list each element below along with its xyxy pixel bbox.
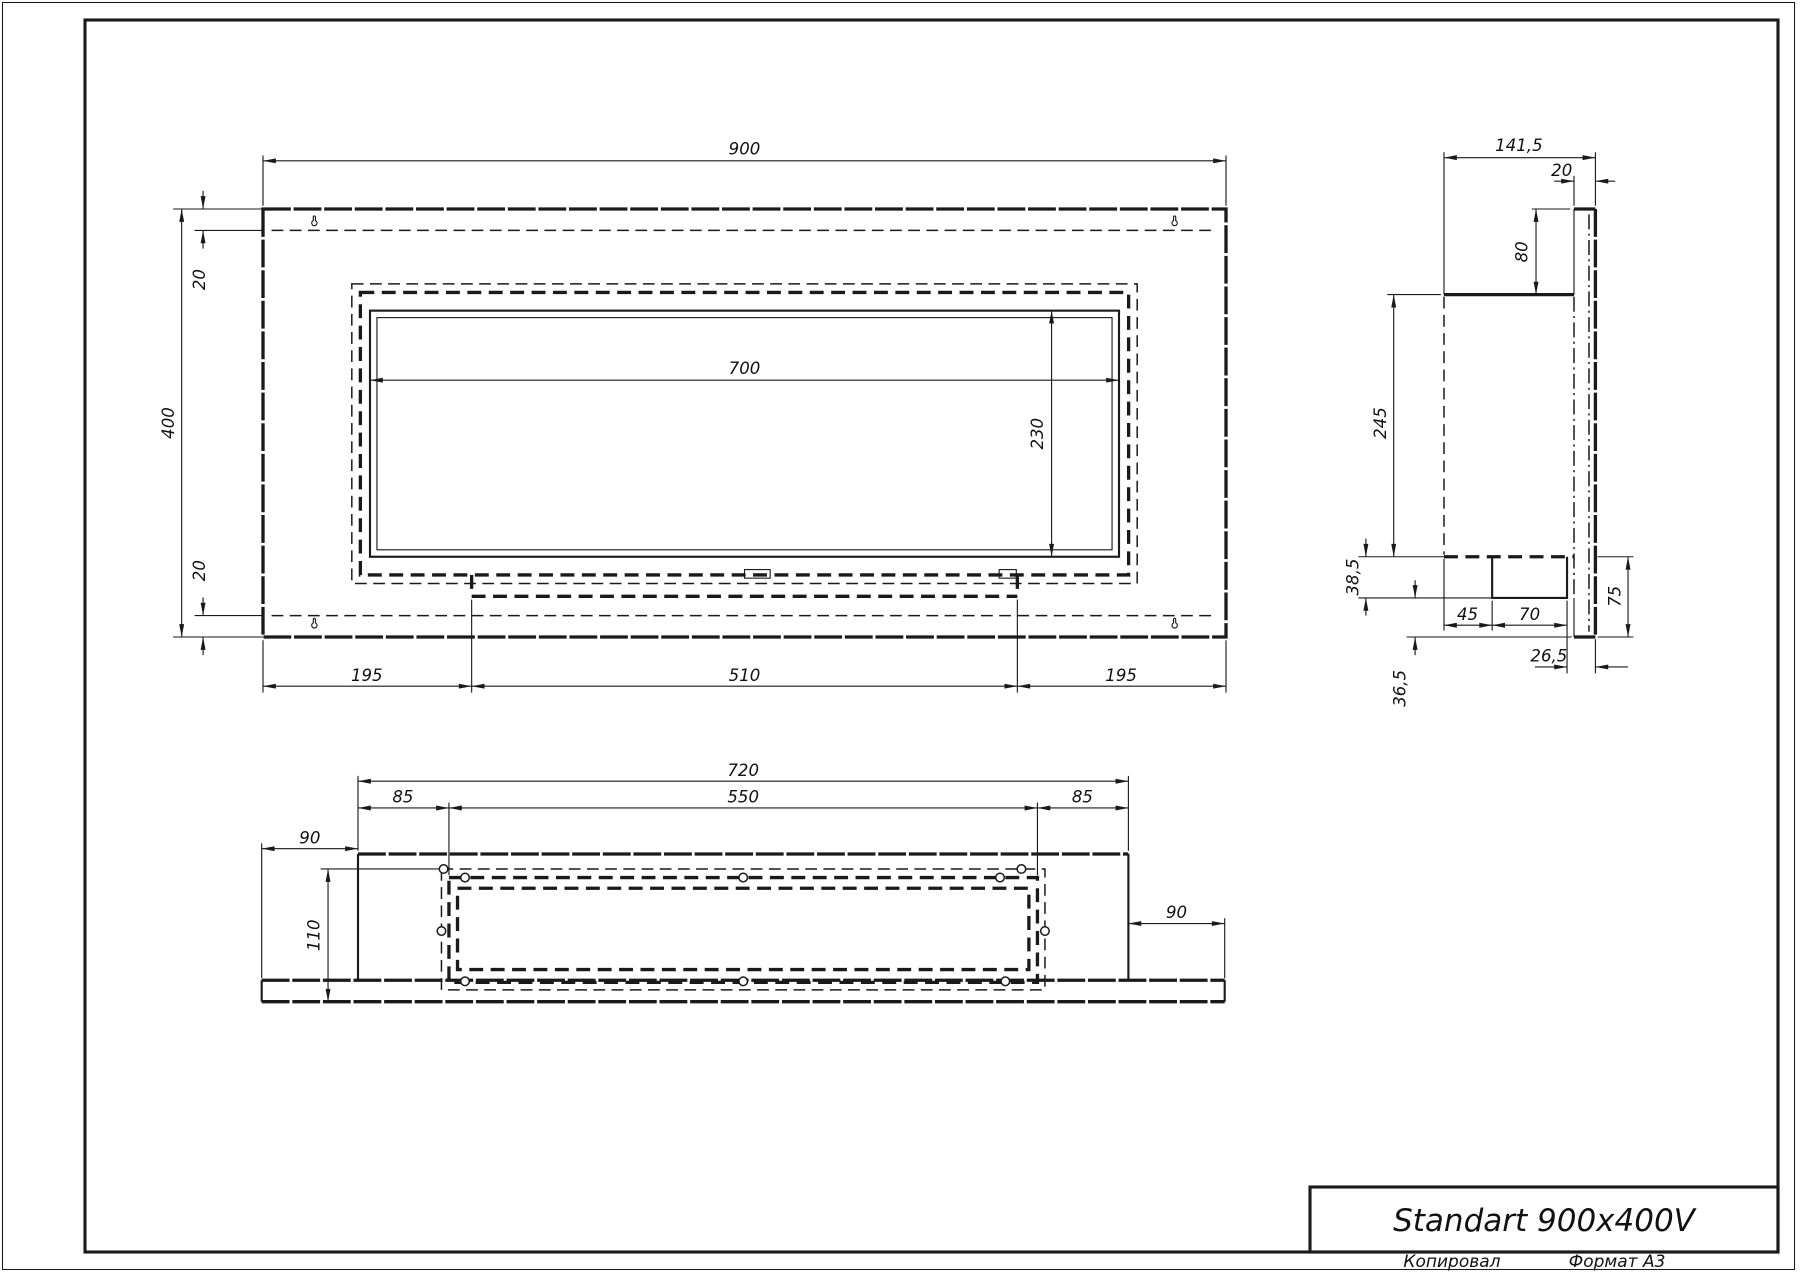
screw-hole (739, 873, 748, 882)
screw-hole (1001, 977, 1010, 986)
screw-hole (739, 977, 748, 986)
dim-body-height: 245 (1371, 407, 1390, 439)
keyhole-icon (1172, 618, 1177, 628)
dim-left-inset: 85 (392, 788, 413, 807)
dim-back-height: 75 (1606, 586, 1625, 607)
keyhole-icon (312, 216, 317, 226)
dim-below-tray: 36,5 (1390, 670, 1409, 707)
dim-tray-width: 510 (729, 666, 761, 685)
title-block: Standart 900x400V Копировал Формат А3 (1310, 1187, 1778, 1272)
screw-holes (437, 865, 1049, 986)
dim-front-width: 900 (729, 139, 761, 158)
dim-plate-thickness: 20 (1551, 161, 1572, 180)
opening-outline (370, 311, 1119, 557)
body-profile (1444, 295, 1574, 598)
drawing-title: Standart 900x400V (1393, 1203, 1698, 1239)
dim-body-width: 720 (727, 761, 759, 780)
dim-depth: 141,5 (1495, 136, 1542, 155)
format-label: Формат А3 (1569, 1252, 1666, 1272)
dim-opening-width: 700 (729, 359, 761, 378)
dim-side-tray-width: 70 (1519, 605, 1540, 624)
dim-front-to-tray: 45 (1457, 605, 1478, 624)
dim-tray-to-back: 26,5 (1530, 647, 1567, 666)
hidden-frame-outline (360, 292, 1128, 574)
dim-right-inset: 85 (1072, 788, 1093, 807)
screw-hole (1017, 865, 1026, 874)
bottom-hidden-opening (441, 869, 1044, 990)
dim-left-overhang: 90 (299, 828, 320, 847)
copied-label: Копировал (1403, 1252, 1500, 1272)
dim-bottom-depth: 110 (304, 919, 323, 951)
screw-hole (439, 865, 448, 874)
dim-bottom-opening-width: 550 (727, 788, 759, 807)
dim-front-top-inset: 20 (190, 269, 209, 290)
dim-right-overhang: 90 (1166, 903, 1187, 922)
hidden-body-outline (352, 284, 1137, 584)
drawing-sheet: 900 400 20 20 700 230 195 510 195 (0, 0, 1800, 1273)
screw-hole (1041, 927, 1050, 936)
dim-tray-height: 38,5 (1343, 559, 1362, 596)
screw-hole (461, 873, 470, 882)
side-view: 141,5 20 80 245 38,5 45 70 75 (1343, 136, 1633, 707)
bottom-view: 720 85 550 85 90 90 110 (262, 761, 1225, 1002)
technical-drawing: 900 400 20 20 700 230 195 510 195 (0, 0, 1800, 1273)
dim-flange-height: 80 (1512, 241, 1531, 262)
keyhole-icon (312, 618, 317, 628)
dim-front-bottom-inset: 20 (190, 560, 209, 581)
front-view-dimensions: 900 400 20 20 700 230 195 510 195 (159, 139, 1226, 692)
dim-front-height: 400 (159, 407, 178, 439)
opening-inner-outline (377, 318, 1112, 550)
back-plate-outline (1574, 209, 1595, 637)
screw-hole (461, 977, 470, 986)
side-view-dimensions: 141,5 20 80 245 38,5 45 70 75 (1343, 136, 1633, 707)
keyhole-slots (312, 216, 1178, 628)
dim-left-offset: 195 (351, 666, 383, 685)
front-view: 900 400 20 20 700 230 195 510 195 (159, 139, 1226, 692)
screw-hole (996, 873, 1005, 882)
dim-opening-height: 230 (1028, 418, 1047, 450)
dim-right-offset: 195 (1105, 666, 1137, 685)
keyhole-icon (1172, 216, 1177, 226)
screw-hole (437, 927, 446, 936)
